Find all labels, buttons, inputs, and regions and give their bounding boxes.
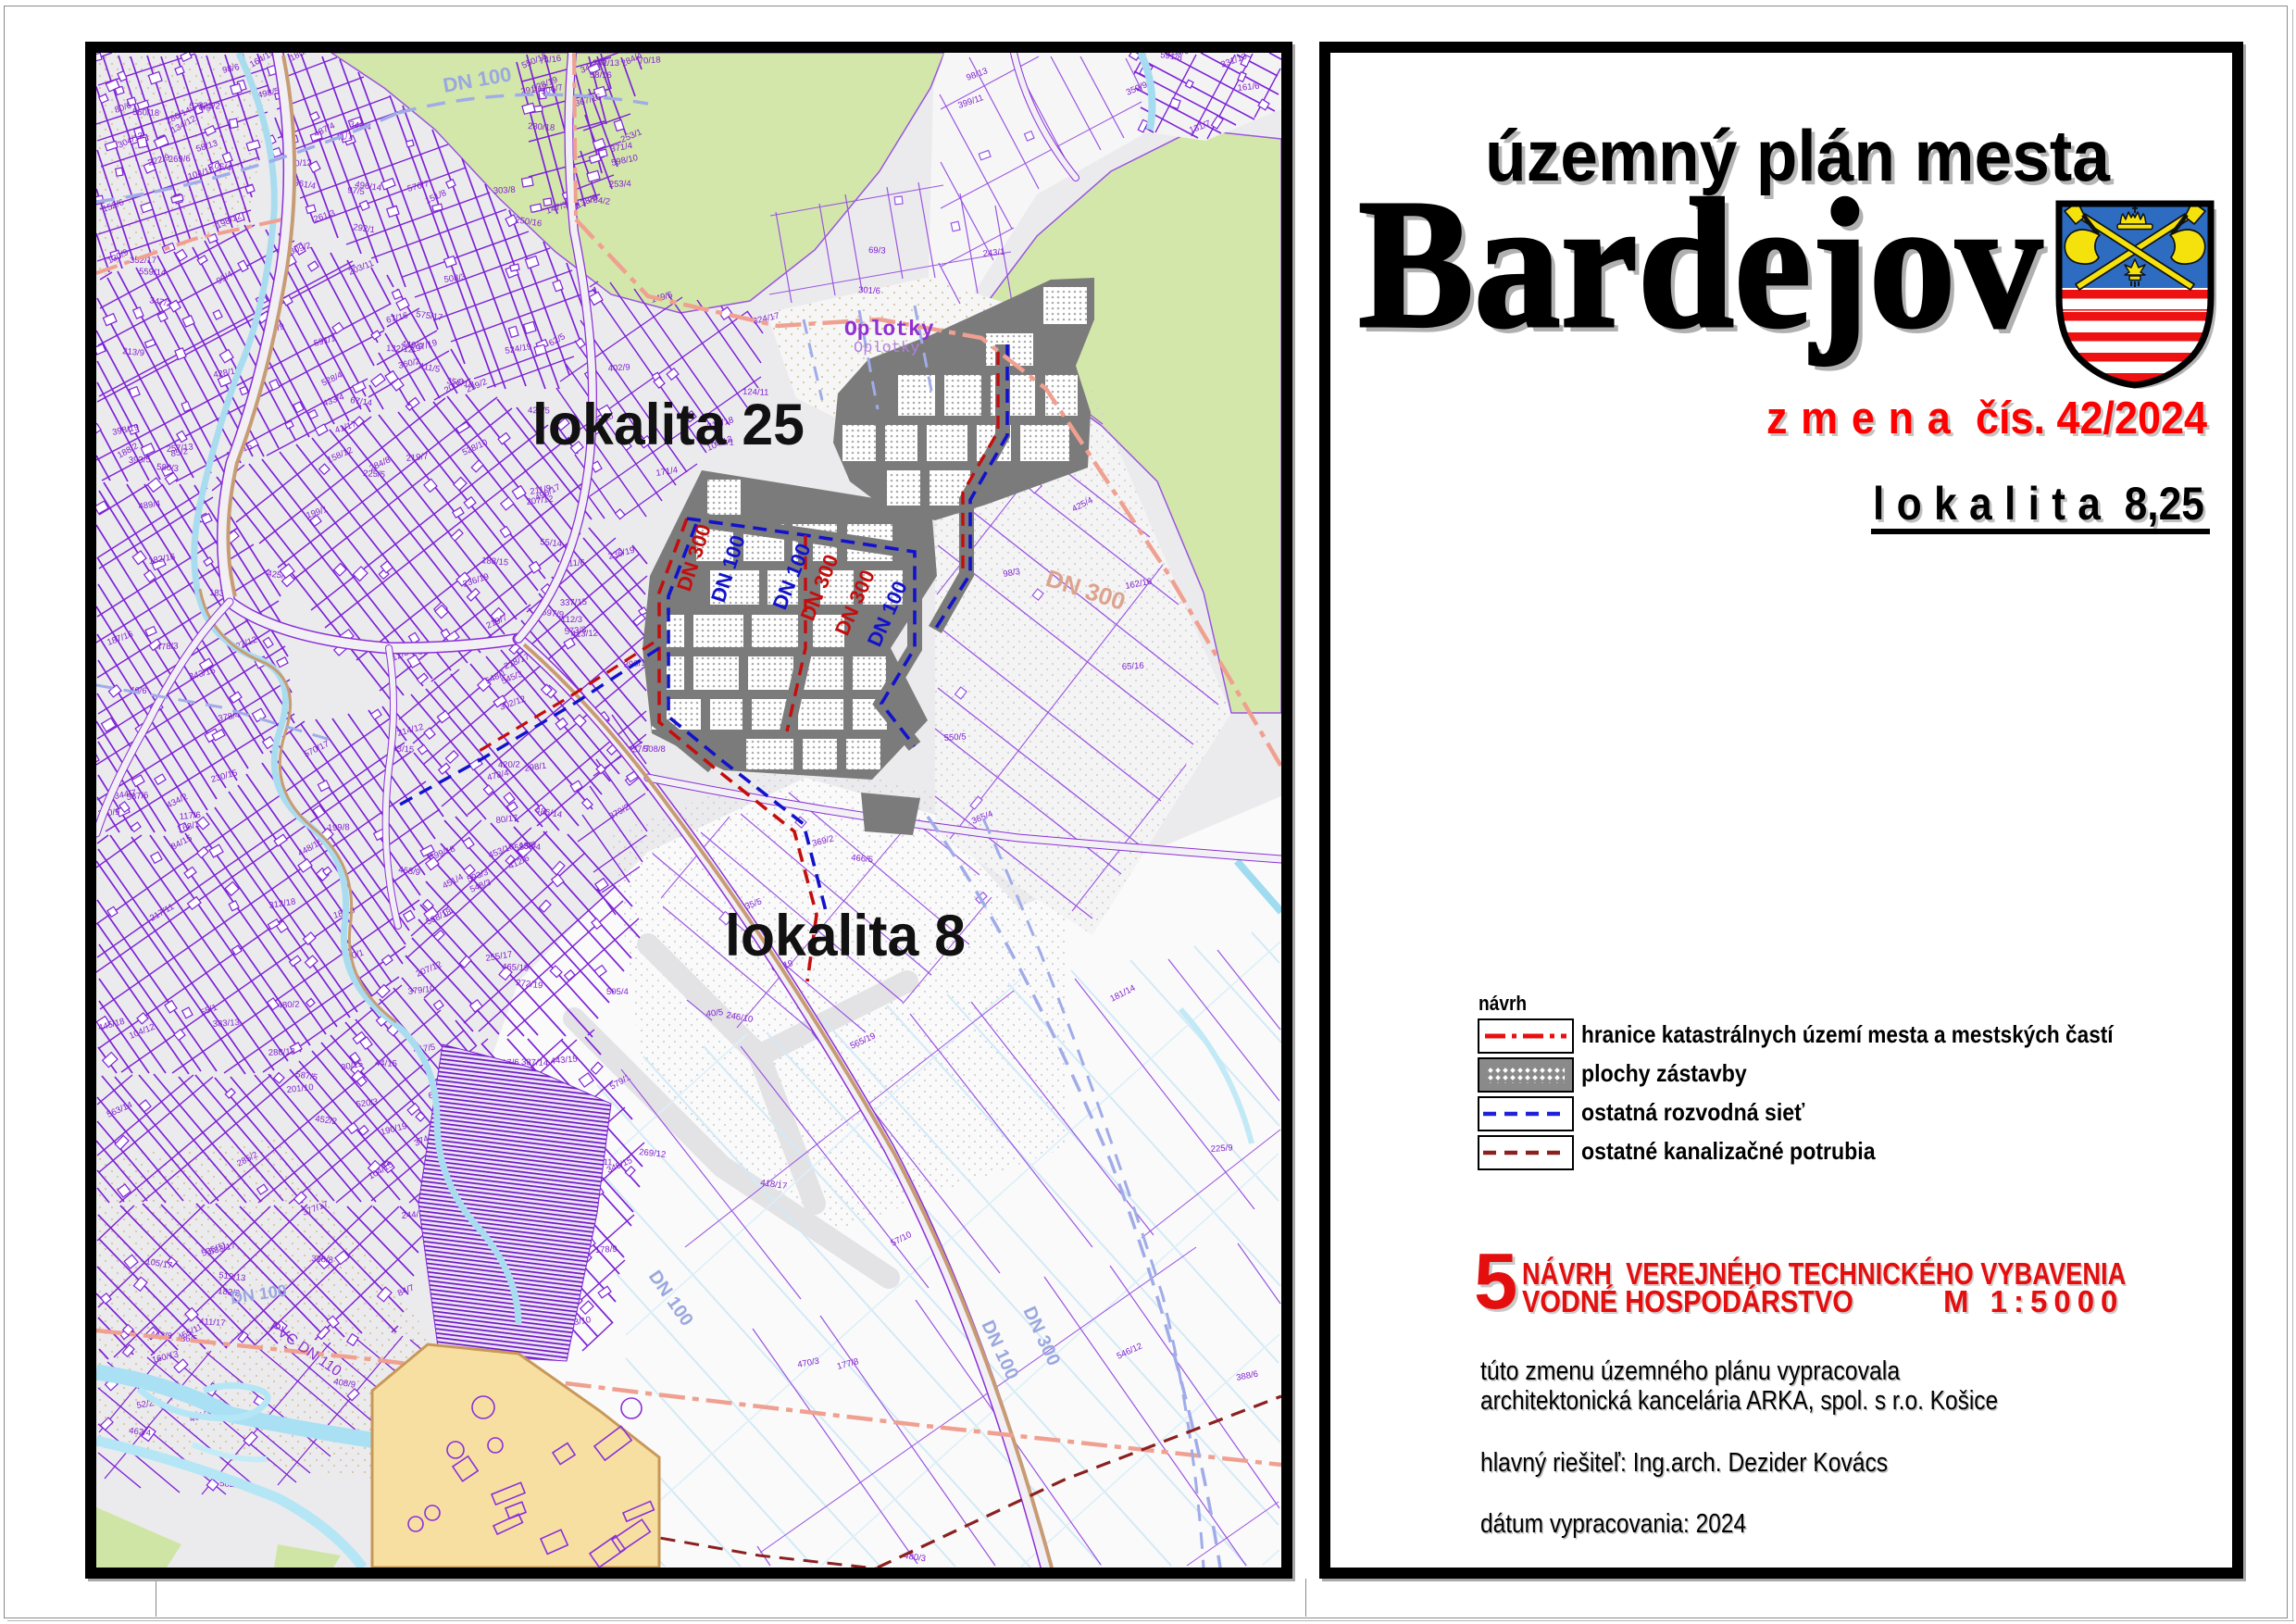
svg-text:lokalita 8: lokalita 8 [725,904,966,968]
svg-text:586/3: 586/3 [156,462,180,474]
svg-text:269/6: 269/6 [168,154,191,165]
svg-text:97/5: 97/5 [347,185,366,197]
svg-text:478/3: 478/3 [156,641,178,653]
svg-text:Oplotky: Oplotky [854,340,919,357]
svg-text:402/9: 402/9 [607,362,630,374]
svg-text:44/15: 44/15 [375,1058,397,1069]
svg-text:303/8: 303/8 [493,185,516,196]
svg-text:301/6: 301/6 [858,285,880,296]
svg-text:lokalita 25: lokalita 25 [532,393,805,457]
svg-text:560/18: 560/18 [132,107,159,119]
svg-text:178/9: 178/9 [595,1244,618,1255]
svg-text:112/3: 112/3 [561,615,582,625]
svg-text:Oplotky: Oplotky [844,318,934,342]
svg-text:117/6: 117/6 [179,810,201,822]
svg-text:411/17: 411/17 [199,1317,226,1329]
svg-text:550/5: 550/5 [943,731,966,743]
svg-text:65/16: 65/16 [1122,661,1144,672]
svg-text:199/8: 199/8 [328,822,350,833]
svg-text:420/2: 420/2 [498,760,520,770]
svg-text:225/5: 225/5 [363,468,385,481]
svg-text:40/5: 40/5 [705,1007,724,1019]
svg-text:465/19: 465/19 [502,962,530,974]
svg-text:253/4: 253/4 [609,179,631,190]
svg-text:225/9: 225/9 [1210,1143,1232,1155]
svg-text:280/18: 280/18 [528,121,555,133]
svg-text:559/14: 559/14 [139,267,167,279]
svg-text:69/3: 69/3 [868,245,886,256]
svg-text:383/13: 383/13 [212,1018,240,1030]
svg-text:480/2: 480/2 [277,999,299,1011]
svg-text:288/13: 288/13 [268,1046,296,1058]
svg-text:573/8: 573/8 [564,625,587,637]
svg-text:393/5: 393/5 [129,455,151,466]
svg-text:328/8: 328/8 [311,1254,334,1266]
svg-text:337/15: 337/15 [560,597,587,608]
svg-text:505/4: 505/4 [606,987,629,997]
svg-text:58/16: 58/16 [590,70,612,81]
